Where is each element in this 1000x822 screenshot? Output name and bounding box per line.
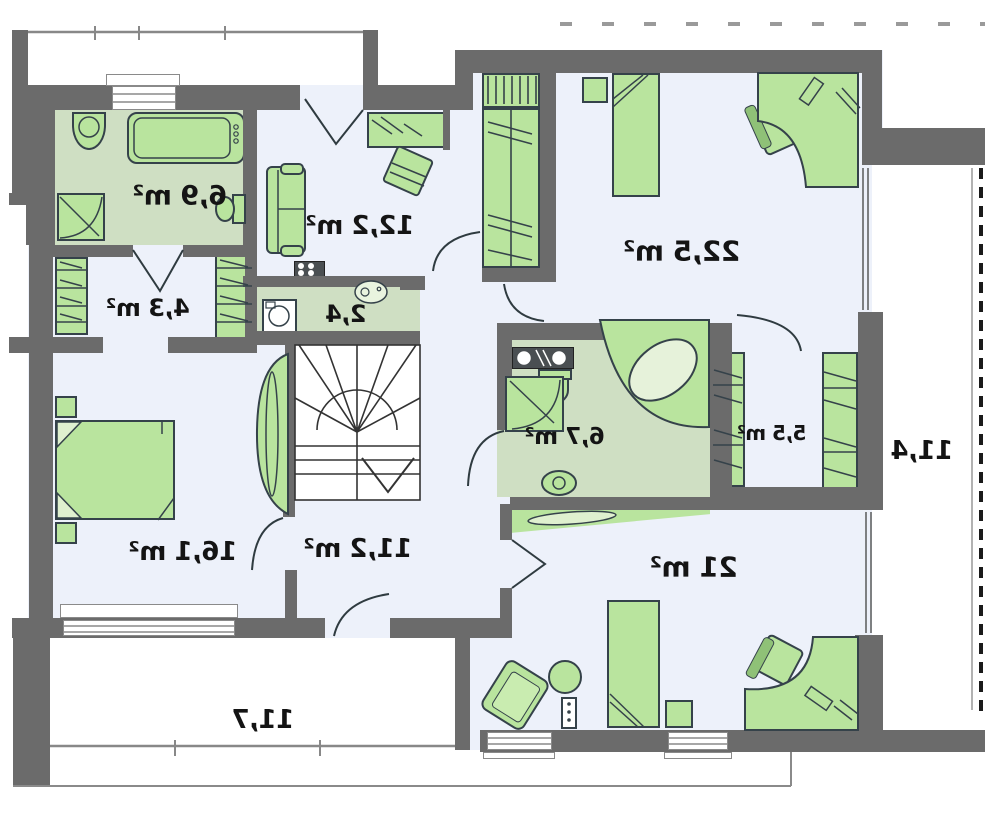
room-label-bath-main: 6,9 m² xyxy=(133,181,227,212)
wall xyxy=(285,570,297,618)
room-label-bedroom-master: 16,1 m² xyxy=(129,537,237,567)
wardrobe-a xyxy=(55,257,88,335)
wall xyxy=(9,337,103,353)
sofa-armrest-top xyxy=(280,163,304,175)
wall xyxy=(510,497,710,510)
wall xyxy=(168,337,257,353)
washing-machine xyxy=(262,299,297,333)
wall xyxy=(13,618,50,787)
wall xyxy=(862,128,985,165)
wall xyxy=(183,245,253,257)
wall xyxy=(855,635,883,732)
wall xyxy=(390,618,500,638)
bathtub xyxy=(127,112,245,164)
wall xyxy=(243,110,257,257)
room-label-terrace-side: 11,4 xyxy=(891,436,953,466)
wall xyxy=(245,255,257,343)
radiator xyxy=(561,697,577,729)
wall xyxy=(480,730,985,752)
wall xyxy=(858,312,883,510)
wall xyxy=(29,203,53,618)
wall xyxy=(283,497,295,517)
window-sill xyxy=(664,752,732,759)
wall xyxy=(443,110,450,150)
wardrobe-hall xyxy=(482,108,540,268)
room-label-bath-second: 6,7 m² xyxy=(525,424,605,450)
wall xyxy=(497,340,512,430)
wall xyxy=(243,276,425,287)
nightstand-3 xyxy=(55,522,77,544)
wall xyxy=(500,588,512,638)
stairs-floor xyxy=(295,345,420,500)
wardrobe-hall-top xyxy=(482,73,540,108)
sideboard xyxy=(367,112,448,148)
window-sill xyxy=(60,604,238,618)
stool-round xyxy=(548,660,582,694)
wall xyxy=(285,345,295,497)
wall xyxy=(455,618,470,750)
wall xyxy=(482,268,542,282)
bed-single-bottom xyxy=(607,600,660,728)
wall xyxy=(497,323,710,340)
room-label-hall: 11,2 m² xyxy=(304,534,412,564)
floor-plan: 6,9 m² 4,3 m² 12,2 m² 2,4 22,5 m² 6,7 m²… xyxy=(0,0,1000,822)
nightstand-4 xyxy=(665,700,693,728)
wall xyxy=(400,279,425,290)
wall xyxy=(455,50,882,73)
window xyxy=(63,620,235,636)
room-label-bedroom-third: 21 m² xyxy=(650,551,738,584)
sofa-armrest-bottom xyxy=(280,245,304,257)
wall xyxy=(540,50,556,282)
window xyxy=(668,732,728,750)
room-label-terrace-bottom: 11,7 xyxy=(232,705,294,735)
bed-single-top xyxy=(612,73,660,197)
window xyxy=(112,86,176,110)
wall xyxy=(33,245,133,257)
sofa xyxy=(266,166,306,254)
window-sill xyxy=(106,74,180,86)
wall xyxy=(710,323,732,510)
bed-double xyxy=(55,420,175,520)
nightstand-2 xyxy=(55,396,77,418)
shower xyxy=(57,193,105,241)
window xyxy=(487,732,552,750)
wall xyxy=(253,331,420,345)
window-sill xyxy=(483,752,555,759)
room-label-closet-b: 5,5 m² xyxy=(738,421,807,445)
vanity-counter xyxy=(512,347,574,369)
room-label-living: 12,2 m² xyxy=(306,211,414,241)
room-label-closet-a: 4,3 m² xyxy=(106,294,189,322)
wall xyxy=(710,487,883,510)
balcony-top-floor xyxy=(28,36,363,85)
wardrobe-d xyxy=(822,352,858,495)
nightstand-1 xyxy=(582,77,608,103)
room-label-kitchen: 2,4 xyxy=(325,300,366,328)
room-label-bedroom-large: 22,5 m² xyxy=(624,235,741,268)
